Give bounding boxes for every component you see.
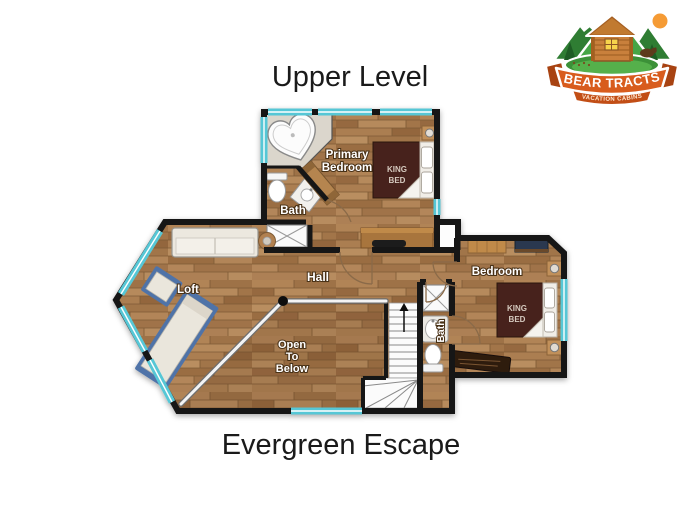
label-hall-bath: Bath [435, 319, 447, 342]
label-primary-bedroom-2: Bedroom [322, 162, 372, 174]
label-king-bed-2b: BED [509, 315, 526, 324]
nightstand-2a [547, 261, 562, 276]
logo: BEAR TRACTS VACATION CABINS [546, 10, 678, 105]
railing-post [278, 296, 288, 306]
king-bed-2 [497, 283, 557, 337]
floorplan-page: Upper Level Evergreen Escape [0, 0, 683, 512]
label-king-bed-2a: KING [507, 304, 527, 313]
property-name: Evergreen Escape [222, 429, 461, 461]
closet [439, 224, 456, 248]
label-bedroom-2: Bedroom [472, 266, 522, 278]
label-hall: Hall [307, 270, 329, 284]
label-open-below-1: Open [278, 339, 306, 351]
nightstand-2b [547, 340, 562, 355]
tv-console-primary [361, 228, 433, 248]
floorplan-svg: Upper Level Evergreen Escape [0, 0, 683, 512]
toilet-icon [267, 173, 287, 202]
label-loft: Loft [177, 284, 199, 296]
floorplan: Primary Bedroom KING BED Bath Loft Hall … [116, 111, 564, 411]
page-title: Upper Level [272, 61, 428, 93]
label-primary-bedroom-1: Primary [326, 149, 369, 161]
side-table-icon [259, 233, 276, 250]
label-primary-bath: Bath [280, 205, 306, 217]
label-open-below-3: Below [276, 363, 309, 375]
sun-icon [653, 14, 668, 29]
bench [468, 240, 506, 253]
label-open-below-2: To [286, 351, 299, 363]
label-king-bed-1a: KING [387, 165, 407, 174]
label-king-bed-1b: BED [389, 176, 406, 185]
cabin-icon [586, 15, 638, 61]
sofa-icon [172, 228, 258, 257]
